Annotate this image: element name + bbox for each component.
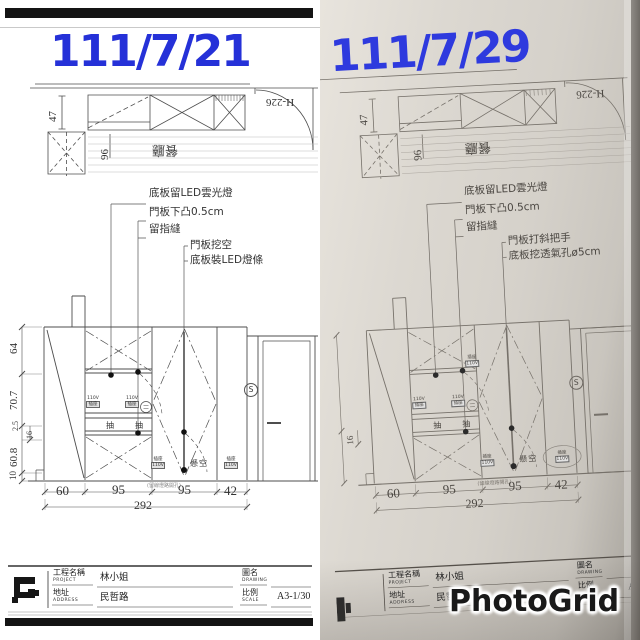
project-label: 工程名稱 <box>53 569 85 577</box>
plan-width-dim: 96 <box>413 149 425 161</box>
room-label: 餐廳 <box>464 139 491 159</box>
callout-door-protrude: 門板下凸0.5cm <box>149 207 224 218</box>
hdim-95: 95 <box>112 483 125 496</box>
outlet-voltage: 110V <box>151 462 165 469</box>
scale-label-en: SCALE <box>242 599 259 604</box>
outlet-label: 插座 110V <box>224 457 238 469</box>
outlet-text: 插座 <box>412 402 426 410</box>
revision-date: 111/7/29 <box>329 25 531 79</box>
outlet-label: 插座 110V <box>151 457 165 469</box>
revision-date: 111/7/21 <box>50 30 250 74</box>
outlet-label: 插座 110V <box>480 454 495 467</box>
plan-width-dim: 96 <box>100 149 111 160</box>
drawer-label: 抽 <box>106 420 114 431</box>
outlet-text: 插座 <box>227 457 236 462</box>
floating-label: 懸空 <box>190 458 208 469</box>
drawing-label: 圖名 <box>242 569 258 577</box>
vdim-10: 10 <box>9 471 18 480</box>
drawer-label: 抽 <box>462 418 471 429</box>
callout-led-glow: 底板留LED雲光燈 <box>149 188 233 199</box>
vdim-64: 64 <box>9 343 20 354</box>
outlet-text: 插座 <box>154 457 163 462</box>
callout-led-strip: 底板裝LED燈條 <box>190 255 263 266</box>
tiny-note: (留線燈路開孔) <box>147 484 181 489</box>
outlet-label: 110V 插座 <box>86 396 100 408</box>
plan-depth-dim: 47 <box>48 111 59 122</box>
outlet-label: 插座 110V <box>465 355 480 368</box>
photogrid-watermark: PhotoGrid <box>449 584 619 619</box>
door-height-label: H-226 <box>576 87 605 99</box>
outlet-text: 插座 <box>86 401 100 408</box>
vdim-70-7: 70.7 <box>9 391 20 410</box>
drawing-label-en: DRAWING <box>242 579 267 584</box>
outlet-voltage: 110V <box>480 459 494 467</box>
outlet-label: 110V 插座 <box>125 396 139 408</box>
project-label-en: PROJECT <box>53 579 76 584</box>
hdim-60: 60 <box>56 484 69 497</box>
hdim-95b: 95 <box>508 479 522 493</box>
callout-finger-gap: 留指縫 <box>149 224 181 235</box>
outlet-voltage: 110V <box>126 396 138 401</box>
hdim-60: 60 <box>387 486 401 500</box>
switch-symbol: S <box>244 383 258 397</box>
outlet-voltage: 110V <box>224 462 238 469</box>
photo-edge-shadow <box>631 0 640 640</box>
outlet-voltage: 110V <box>452 395 464 401</box>
left-drawing-panel: 111/7/21 47 96 餐廳 H-226 底板留LED雲光燈 門板下凸0.… <box>0 0 320 640</box>
hdim-95b: 95 <box>178 483 191 496</box>
outlet-text: 插座 <box>482 454 491 459</box>
company-logo <box>12 577 39 603</box>
address-label-en: ADDRESS <box>53 599 78 604</box>
vdim-16: 16 <box>26 431 34 439</box>
outlet-text: 插座 <box>125 401 139 408</box>
address-label: 地址 <box>53 589 69 597</box>
project-value: 林小姐 <box>100 573 129 583</box>
outlet-voltage: 110V <box>555 455 569 463</box>
scale-value: A3-1/30 <box>277 592 310 602</box>
hdim-total: 292 <box>465 497 484 510</box>
photo-tilt-wrapper: 111/7/29 47 96 餐廳 H-226 底板留LED雲光燈 門板下凸0.… <box>320 0 640 640</box>
outlet-voltage: 110V <box>465 360 479 368</box>
drawer-label: 抽 <box>433 420 442 431</box>
outlet-text: 插座 <box>467 355 476 360</box>
outlet-label: 110V 插座 <box>451 395 466 408</box>
hdim-total: 292 <box>134 499 152 511</box>
outlet-label-circled: 插座 110V <box>555 450 570 463</box>
vdim-60-8: 60.8 <box>9 448 20 467</box>
hdim-95: 95 <box>442 482 456 496</box>
bottom-black-bar <box>5 618 313 626</box>
callout-door-cutout: 門板挖空 <box>190 240 232 251</box>
hdim-42: 42 <box>224 484 237 497</box>
plan-depth-dim: 47 <box>359 114 371 126</box>
door-height-label: H-226 <box>266 96 294 107</box>
right-drawing-panel: 111/7/29 47 96 餐廳 H-226 底板留LED雲光燈 門板下凸0.… <box>320 0 640 640</box>
outlet-voltage: 110V <box>413 397 425 403</box>
hdim-42: 42 <box>554 477 568 491</box>
floating-label: 懸空 <box>519 453 538 465</box>
room-label: 餐廳 <box>152 142 178 161</box>
scale-label: 比例 <box>242 589 258 597</box>
drawer-label: 抽 <box>135 420 143 431</box>
outlet-text: 插座 <box>557 450 566 455</box>
address-value: 民哲路 <box>100 593 129 603</box>
outlet-label: 110V 插座 <box>412 397 427 410</box>
outlet-text: 插座 <box>451 400 465 408</box>
callout-finger-gap: 留指縫 <box>466 221 498 233</box>
outlet-voltage: 110V <box>87 396 99 401</box>
vdim-16: 16 <box>346 435 355 444</box>
vdim-2-5: 2.5 <box>12 421 20 431</box>
